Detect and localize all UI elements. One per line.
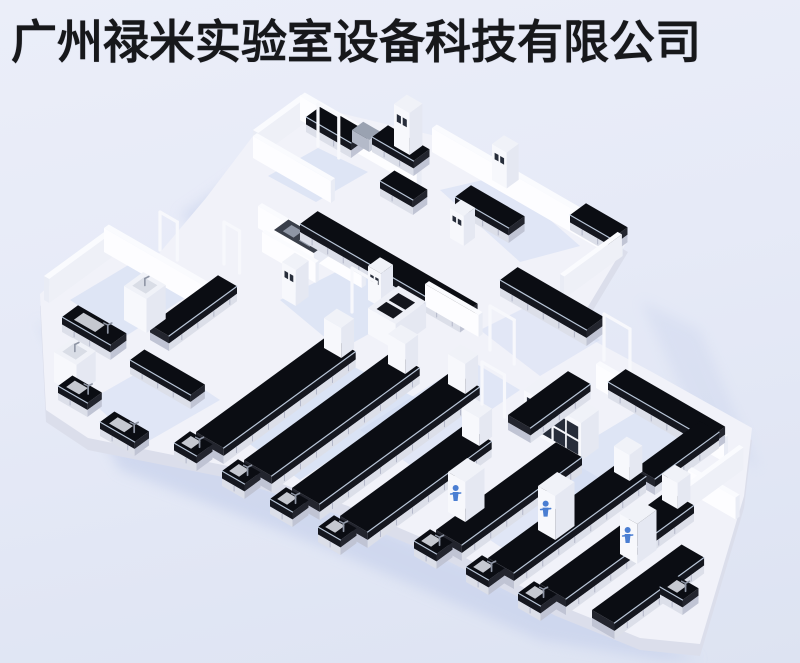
wall-front — [316, 261, 319, 283]
lab-3d-render — [0, 0, 800, 663]
company-title: 广州禄米实验室设备科技有限公司 — [11, 6, 701, 72]
wall-front — [331, 178, 335, 203]
door-frame — [604, 314, 630, 329]
figure-icon — [451, 493, 461, 494]
figure-icon — [453, 485, 459, 491]
figure-icon — [623, 535, 633, 536]
wall-side — [44, 276, 49, 303]
figure-icon — [541, 509, 551, 510]
door-frame — [160, 212, 177, 222]
wall-front — [736, 495, 740, 520]
wall-front — [479, 312, 483, 337]
figure-icon — [625, 527, 631, 533]
page: 广州禄米实验室设备科技有限公司 — [0, 0, 800, 663]
figure-icon — [543, 501, 549, 507]
